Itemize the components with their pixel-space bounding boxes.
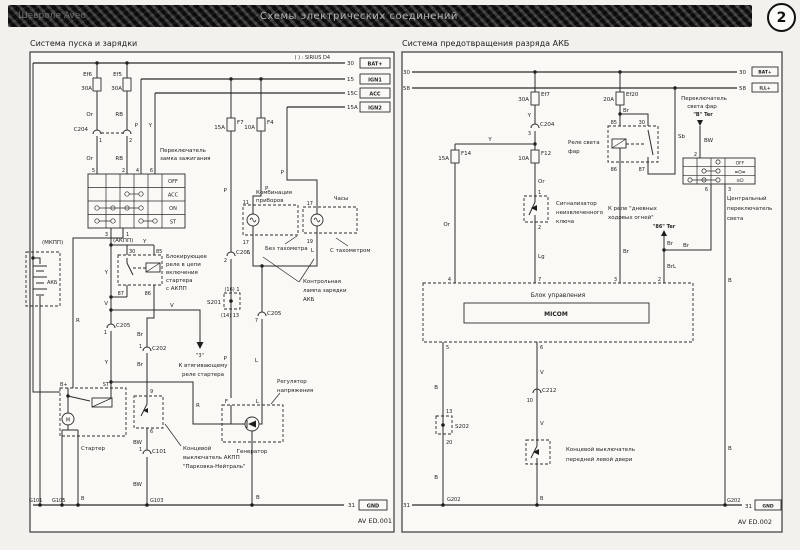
wire-label-y: Y xyxy=(142,239,147,245)
wire-label-v: V xyxy=(170,303,174,309)
motor-m: M xyxy=(66,418,70,424)
ground-g101: G101 xyxy=(29,498,42,504)
wire-label-y: Y xyxy=(104,270,109,276)
connector-pin: 2 xyxy=(224,258,227,264)
fuse-f7-label: F7 xyxy=(237,120,244,126)
wire-label-bw: BW xyxy=(133,440,143,446)
wire-label-b: B xyxy=(728,446,732,452)
micom-pin-3: 3 xyxy=(614,277,617,283)
relay-pin-85: 85 xyxy=(611,120,617,126)
wire-label-y: Y xyxy=(104,360,109,366)
pn-switch-caption: Концевой xyxy=(183,445,212,452)
bus-bat-box: BAT+ xyxy=(368,62,383,68)
central-switch-caption: Центральный xyxy=(727,195,767,202)
battery-label: АКБ xyxy=(47,280,58,286)
wire-label-y: Y xyxy=(148,123,153,129)
connector-pin: 3 xyxy=(528,131,531,137)
cluster-caption: Комбинация xyxy=(256,190,292,196)
wire-label-lg: Lg xyxy=(538,254,545,260)
fuse-ef5-rating: 30A xyxy=(111,86,122,92)
connector-c205-label: C205 xyxy=(116,323,131,329)
bus-15a-label: 15A xyxy=(347,105,358,111)
micom-pin-4: 4 xyxy=(448,277,451,283)
ign-pin-3: 3 xyxy=(105,232,108,238)
fuse-ef6-rating: 30A xyxy=(81,86,92,92)
splice-s202-label: S202 xyxy=(455,424,469,430)
wire-label-rb: RB xyxy=(115,156,123,162)
generator-caption: Генератор xyxy=(237,449,268,455)
bus-gnd-box: GND xyxy=(762,504,773,510)
connector-pin: 1 xyxy=(139,447,142,453)
wire-label-bw: BW xyxy=(704,138,714,144)
starter-bplus: B+ xyxy=(60,382,68,388)
light-switch-caption: света фар xyxy=(687,104,717,110)
switch-pin-2: 2 xyxy=(538,225,541,231)
connector-c204-label: C204 xyxy=(74,127,89,133)
clock-pin-19: 19 xyxy=(307,239,313,245)
fuse-ef20-label: Ef20 xyxy=(626,92,639,98)
connector-pin: 1 xyxy=(139,344,142,350)
bus-ign1-box: IGN1 xyxy=(368,78,382,84)
solenoid-caption: реле стартера xyxy=(182,372,224,378)
door-switch-caption: передней левой двери xyxy=(566,456,633,463)
key-switch-caption: неизвлеченного xyxy=(556,210,604,216)
connector-pin: 1 xyxy=(99,138,102,144)
micom-pin-7: 7 xyxy=(538,277,541,283)
cluster-caption: приборов xyxy=(256,198,284,204)
ign-row-acc: ACC xyxy=(168,193,179,199)
connector-c205-label: C205 xyxy=(236,250,251,256)
relay-caption: Реле света xyxy=(568,140,600,146)
wire-label-brl: BrL xyxy=(667,264,677,270)
micom-pin-2: 2 xyxy=(658,277,661,283)
micom-pin-6: 6 xyxy=(540,345,543,351)
switch-pin-3: 3 xyxy=(728,187,731,193)
cluster-pin-17: 17 xyxy=(243,240,249,246)
s202-pin-top: 13 xyxy=(446,409,452,415)
relay-caption: реле в цепи xyxy=(166,262,201,268)
ign-pin-2: 2 xyxy=(122,168,125,174)
right-panel-title: Система предотвращения разряда АКБ xyxy=(402,39,569,48)
ign-row-on: ON xyxy=(169,206,177,212)
left-sheet-code: AV ED.001 xyxy=(358,517,392,525)
ign-row-off: OFF xyxy=(168,179,178,185)
wire-label-b: B xyxy=(256,495,260,501)
wire-label-or: Or xyxy=(86,156,93,162)
central-switch-caption: света xyxy=(727,216,743,222)
gen-pin-f: F xyxy=(225,399,228,405)
fuse-f4-rating: 10A xyxy=(244,125,255,131)
clock-caption: Часы xyxy=(334,196,349,202)
switch-pin-6: 6 xyxy=(705,187,708,193)
ignition-switch-title: Переключатель xyxy=(160,148,206,154)
central-switch-caption: переключатель xyxy=(727,206,772,212)
s201-pins-top: (16) 1 xyxy=(224,287,239,293)
mt-label: (МКПП) xyxy=(42,240,63,246)
starter-caption: Стартер xyxy=(81,446,105,452)
starter-st: ST xyxy=(103,382,110,388)
left-panel-title: Система пуска и зарядки xyxy=(30,39,137,48)
battery-saver-diagram: Система предотвращения разряда АКБ 30 58… xyxy=(402,39,782,532)
relay-caption: фар xyxy=(568,149,580,155)
wire-label-b: B xyxy=(434,475,438,481)
relay-pin-86: 86 xyxy=(145,291,151,297)
drl-caption: ходовых огней" xyxy=(608,214,654,221)
wire-label-v: V xyxy=(540,421,544,427)
drl-caption: К реле "дневных xyxy=(608,206,658,212)
wire-label-b: B xyxy=(728,278,732,284)
connector-c205-label: C205 xyxy=(267,311,282,317)
relay-pin-87: 87 xyxy=(118,291,124,297)
wire-label-or: Or xyxy=(538,179,545,185)
bus-58-left: 58 xyxy=(403,86,410,92)
sirius-note: ( ) : SIRIUS D4 xyxy=(295,55,330,61)
fuse-f12-label: F12 xyxy=(541,151,551,157)
pn-switch-caption: выключатель АКПП xyxy=(183,455,240,461)
bus-31-label: 31 xyxy=(348,503,355,509)
wire-label-br: Br xyxy=(667,241,674,247)
connector-c202-label: C202 xyxy=(152,346,166,352)
ground-g202-left: G202 xyxy=(447,497,460,503)
ign-row-st: ST xyxy=(170,220,177,226)
fuse-ef5-label: Ef5 xyxy=(113,72,122,78)
right-sheet-code: AV ED.002 xyxy=(738,518,772,526)
bus-58-right: 58 xyxy=(739,86,746,92)
switch-pin-2: 2 xyxy=(694,152,697,158)
starting-charging-diagram: Система пуска и зарядки ( ) : SIRIUS D4 … xyxy=(26,39,394,532)
wire-label-b: B xyxy=(81,496,85,502)
relay-pin-86: 86 xyxy=(611,167,617,173)
parking-lights-icon: ≡O≡ xyxy=(734,170,745,176)
wire-label-y: Y xyxy=(527,113,532,119)
splice-s201-label: S201 xyxy=(207,300,221,306)
connector-pin: 10 xyxy=(527,398,533,404)
switch-pin-9: 9 xyxy=(150,389,153,395)
bus-15-label: 15 xyxy=(347,77,354,83)
wire-label-br: Br xyxy=(137,362,144,368)
wire-label-rb: RB xyxy=(115,112,123,118)
wire-label-sb: Sb xyxy=(678,134,685,140)
wire-label-v: V xyxy=(104,301,108,307)
wire-label-y: Y xyxy=(487,137,492,143)
ign-pin-6: 6 xyxy=(150,168,153,174)
wire-label-br: Br xyxy=(623,249,630,255)
bus-30-label: 30 xyxy=(347,61,354,67)
wire-label-v: V xyxy=(540,370,544,376)
bus-30-left: 30 xyxy=(403,70,410,76)
s202-pin-bottom: 20 xyxy=(446,440,452,446)
bus-acc-box: ACC xyxy=(369,92,381,98)
wire-label-bw: BW xyxy=(133,482,143,488)
charge-lamp-caption: АКБ xyxy=(303,297,315,303)
pn-switch-caption: "Парковка-Нейтраль" xyxy=(183,463,246,470)
relay-caption: с АКПП xyxy=(166,286,187,292)
fuse-f4-label: F4 xyxy=(267,120,274,126)
bus-31-left: 31 xyxy=(403,503,410,509)
relay-caption: Блокирующее xyxy=(166,254,207,260)
connector-c101-label: C101 xyxy=(152,449,166,455)
bus-ill-box: ILL+ xyxy=(759,86,770,92)
bus-31-right: 31 xyxy=(745,504,752,510)
fuse-f14-label: F14 xyxy=(461,151,472,157)
bus-ign2-box: IGN2 xyxy=(368,106,382,112)
light-switch-caption: Переключатель xyxy=(681,96,727,102)
relay-pin-87: 87 xyxy=(639,167,645,173)
connector-pin: 7 xyxy=(255,318,258,324)
wiring-diagram-canvas: Система пуска и зарядки ( ) : SIRIUS D4 … xyxy=(0,0,800,550)
ignition-switch-title2: замка зажигания xyxy=(160,156,210,162)
charge-lamp-caption: Контрольная xyxy=(303,279,341,285)
connector-c204-label: C204 xyxy=(540,122,555,128)
key-switch-caption: ключа xyxy=(556,219,574,225)
regulator-caption: Регулятор xyxy=(277,379,307,385)
bus-gnd-box: GND xyxy=(367,504,379,510)
fuse-f14-rating: 15A xyxy=(438,156,449,162)
fuse-ef7-rating: 30A xyxy=(518,97,529,103)
wire-label-r: R xyxy=(76,318,80,324)
wire-label-br: Br xyxy=(623,108,630,114)
relay-pin-30: 30 xyxy=(639,120,645,126)
relay-pin-85: 85 xyxy=(156,249,162,255)
relay-pin-30: 30 xyxy=(129,249,135,255)
fuse-ef6-label: Ef6 xyxy=(83,72,92,78)
wire-label-br: Br xyxy=(683,243,690,249)
wire-label-or: Or xyxy=(443,222,450,228)
wire-label-b: B xyxy=(434,385,438,391)
door-switch-caption: Концевой выключатель xyxy=(566,446,635,453)
bus-15c-label: 15C xyxy=(347,91,358,97)
bus-bat-box: BAT+ xyxy=(758,70,772,76)
wire-label-r: R xyxy=(196,403,200,409)
relay-caption: включения xyxy=(166,270,198,276)
switch-pos-off: OFF xyxy=(736,161,745,167)
fuse-ef20-rating: 20A xyxy=(603,97,614,103)
ground-g103: G103 xyxy=(150,498,163,504)
connector-pin: 2 xyxy=(129,138,132,144)
ground-g202-right: G202 xyxy=(727,498,740,504)
bus-30-right: 30 xyxy=(739,70,746,76)
at-label: (АКПП) xyxy=(113,238,133,244)
micom-pin-5: 5 xyxy=(446,345,449,351)
fuse-ef7-label: Ef7 xyxy=(541,92,550,98)
drl-terminal: "86" Ter xyxy=(653,224,676,230)
ground-g105: G105 xyxy=(52,498,65,504)
control-unit-caption: Блок управления xyxy=(531,292,586,299)
key-switch-caption: Сигнализатор xyxy=(556,201,597,207)
ign-pin-5: 5 xyxy=(92,168,95,174)
micom-label: MICOM xyxy=(544,311,568,318)
wire-label-b: B xyxy=(540,496,544,502)
solenoid-caption: К втягивающему xyxy=(178,363,228,369)
connector-c212-label: C212 xyxy=(542,388,556,394)
relay-caption: стартера xyxy=(166,278,193,284)
ign-pin-4: 4 xyxy=(136,168,139,174)
s201-pins-bottom: (14) 13 xyxy=(221,313,239,319)
switch-pin-1: 1 xyxy=(538,190,541,196)
charge-lamp-caption: лампа зарядки xyxy=(303,288,347,294)
regulator-caption: напряжения xyxy=(277,388,313,394)
light-switch-terminal: "B" Ter xyxy=(693,112,713,118)
switch-pin-6: 6 xyxy=(150,429,153,435)
headlights-icon: ≡D xyxy=(736,178,744,184)
no-tach-caption: Без тахометра xyxy=(265,246,308,252)
clock-pin-17: 17 xyxy=(307,201,313,207)
offpage-ref: "3" xyxy=(196,353,204,359)
connector-pin: 1 xyxy=(104,330,107,336)
fuse-f12-rating: 10A xyxy=(518,156,529,162)
wire-label-br: Br xyxy=(137,332,144,338)
fuse-f7-rating: 15A xyxy=(214,125,225,131)
with-tach-caption: С тахометром xyxy=(330,248,371,254)
wire-label-or: Or xyxy=(86,112,93,118)
